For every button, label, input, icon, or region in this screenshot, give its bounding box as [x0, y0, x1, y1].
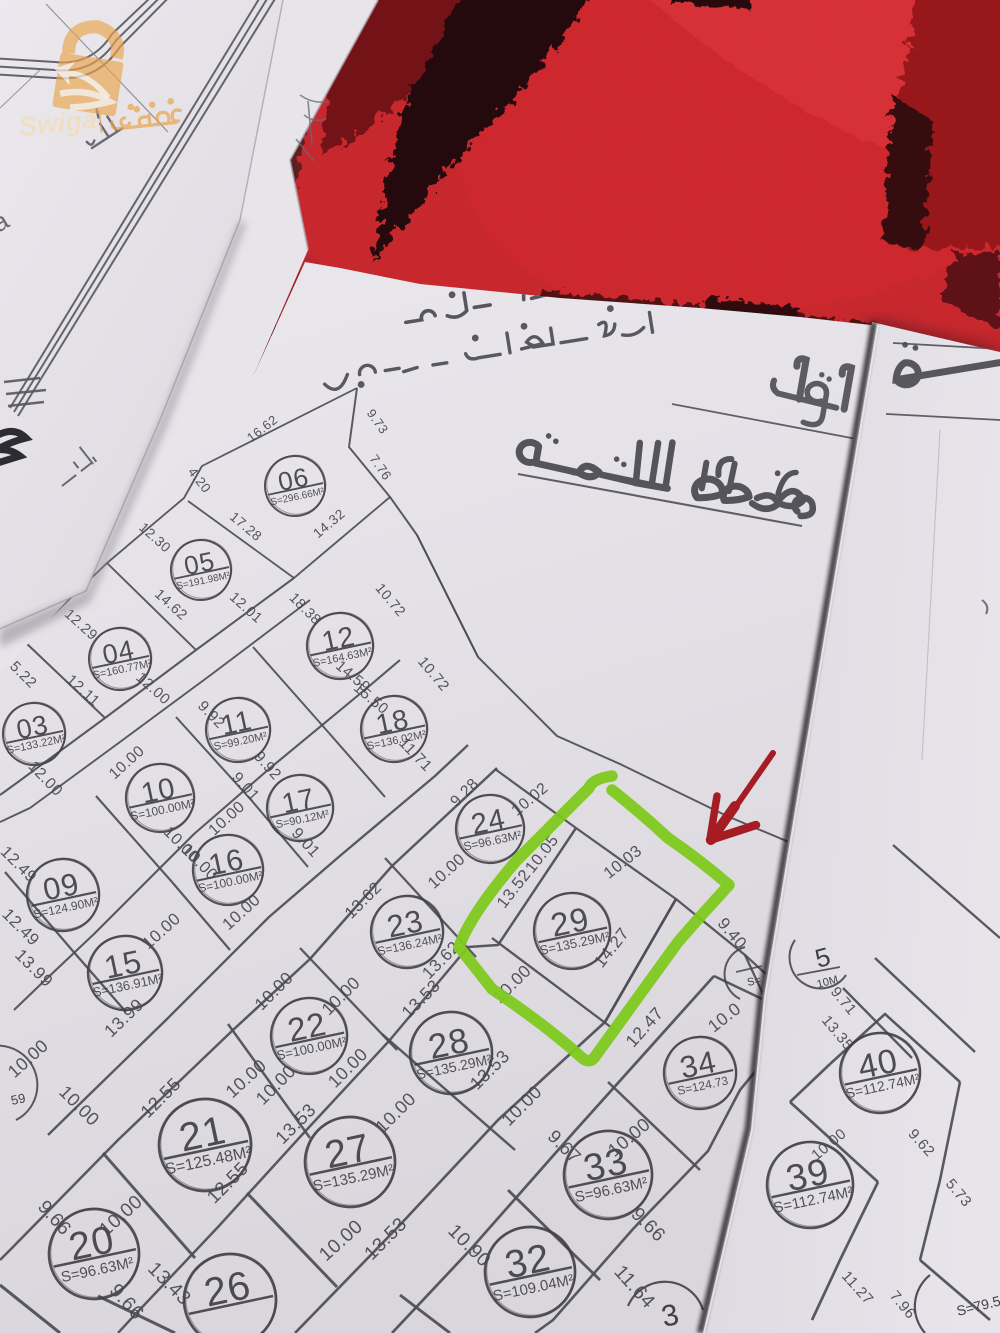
- svg-text:59: 59: [10, 1090, 27, 1108]
